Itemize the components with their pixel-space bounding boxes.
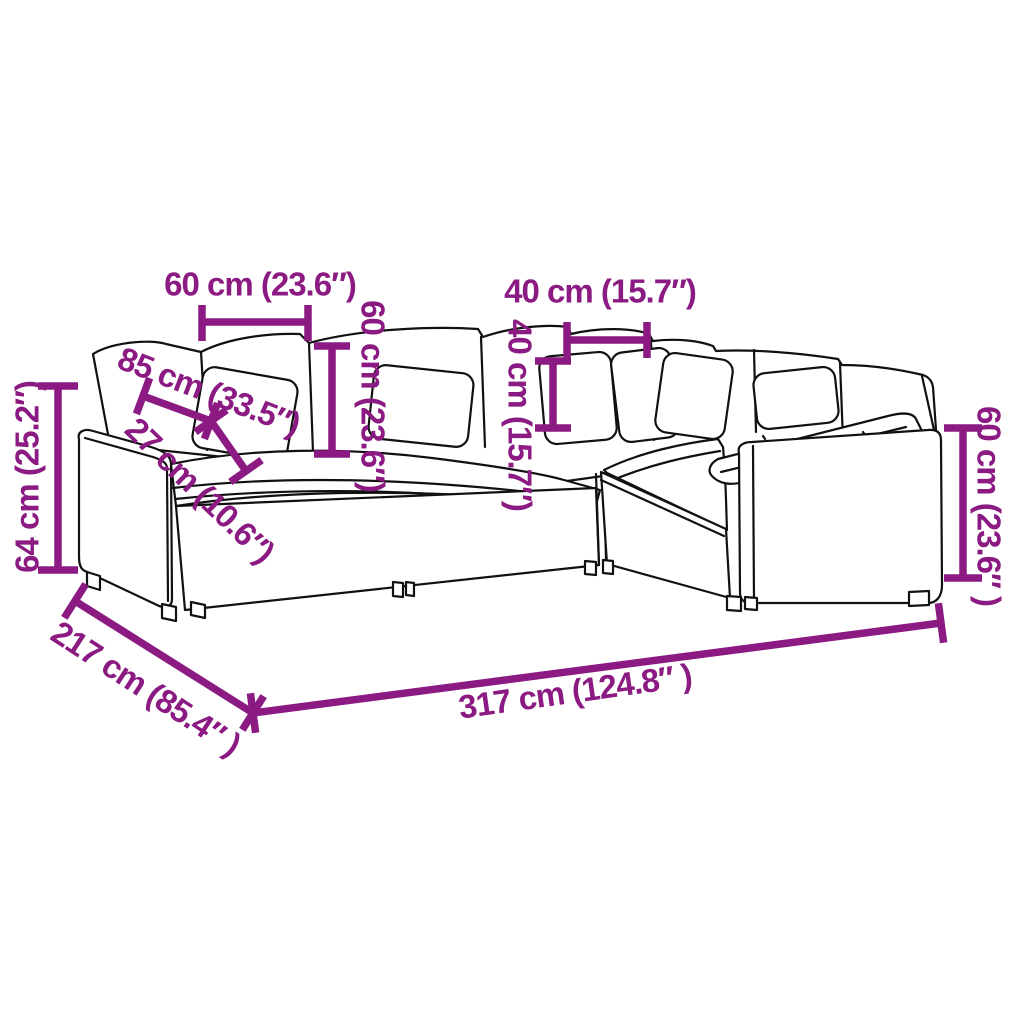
sofa-armrest-right-panel [739, 430, 942, 603]
sofa-leg [162, 604, 176, 621]
sofa-leg [393, 582, 403, 597]
dim-label-right-backrest-height: 60 cm (23.6″ ) [973, 406, 1006, 606]
sofa-leg [745, 597, 757, 610]
dim-label-back-cushion-width: 60 cm (23.6″) [164, 268, 356, 301]
sofa-leg [603, 560, 613, 574]
dimension-diagram: 60 cm (23.6″) 60 cm (23.6″) 40 cm (15.7″… [0, 0, 1024, 1024]
sofa-line-art [0, 0, 1024, 1024]
sofa-leg [909, 591, 929, 606]
dim-label-armrest-height: 64 cm (25.2″) [11, 381, 44, 573]
dim-label-corner-cushion-height: 40 cm (15.7″) [504, 319, 537, 511]
sofa-leg [191, 602, 205, 618]
dim-label-corner-cushion-width: 40 cm (15.7″) [504, 275, 696, 308]
pillow [654, 352, 734, 441]
sofa-leg [727, 596, 741, 611]
sofa-leg [87, 572, 100, 590]
pillow [752, 366, 839, 430]
sofa-leg [585, 561, 596, 575]
dim-line-total-width [250, 603, 943, 733]
sofa-leg [406, 582, 414, 596]
dim-label-back-cushion-height: 60 cm (23.6″) [357, 300, 390, 492]
